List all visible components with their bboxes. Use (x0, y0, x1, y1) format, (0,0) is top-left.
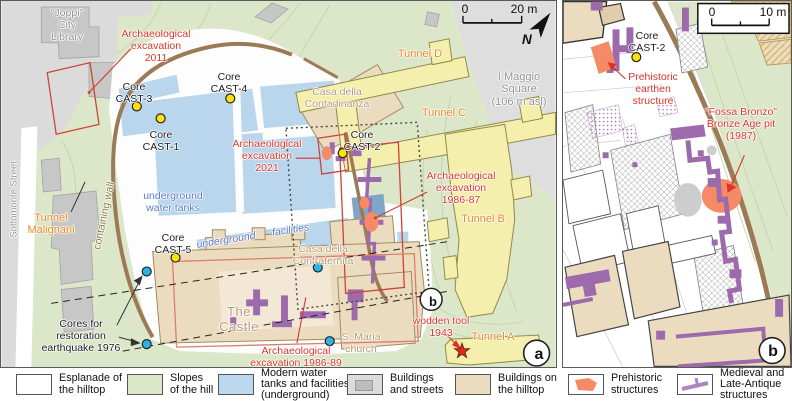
legend-label: Buildings on the hilltop (498, 373, 557, 396)
core-dot-cast3 (132, 102, 141, 111)
core-dot-cast1 (156, 114, 165, 123)
legend-item-water: Modern water tanks and facilities (under… (218, 368, 349, 401)
prehistoric-blob-icon (569, 375, 603, 394)
legend-label: Modern water tanks and facilities (under… (261, 368, 349, 401)
legend-label: Prehistoric structures (611, 373, 662, 396)
core-dot-cast2 (338, 149, 347, 158)
legend-label: Buildings and streets (390, 373, 443, 396)
core-dot-cast5 (171, 253, 180, 262)
legend-item-prehistoric: Prehistoric structures (568, 368, 662, 401)
panel-b: Core CAST-2 Prehistoric earthen structur… (562, 0, 792, 368)
gray-blob (674, 183, 702, 217)
legend-label: Slopes of the hill (170, 373, 213, 396)
panel-b-map (563, 1, 791, 367)
swatch-esplanade (16, 374, 52, 395)
legend-item-buildings-hilltop: Buildings on the hilltop (455, 368, 557, 401)
legend-label: Esplanade of the hilltop (59, 373, 122, 396)
medieval-wall-icon (678, 375, 712, 394)
inset-badge-circle (420, 288, 442, 310)
panel-a: “Joppi” City Library Sottomonte Street A… (0, 0, 557, 368)
core-dot-cast2-b (632, 53, 641, 62)
panel-a-map (1, 1, 556, 367)
swatch-water (218, 374, 254, 395)
figure-archaeological-map: “Joppi” City Library Sottomonte Street A… (0, 0, 792, 401)
core-dot-cast4 (226, 94, 235, 103)
legend-item-buildings-streets: Buildings and streets (347, 368, 443, 401)
swatch-buildings-streets (347, 374, 383, 395)
panel-a-badge-circle (524, 340, 550, 366)
legend-item-medieval: Medieval and Late-Antique structures (677, 368, 784, 401)
swatch-slopes (127, 374, 163, 395)
legend-label: Medieval and Late-Antique structures (720, 368, 784, 401)
legend: Esplanade of the hilltop Slopes of the h… (0, 368, 792, 401)
legend-item-slopes: Slopes of the hill (127, 368, 213, 401)
swatch-buildings-hilltop (455, 374, 491, 395)
panel-b-badge-circle (759, 338, 785, 364)
swatch-prehistoric (568, 374, 604, 395)
swatch-medieval (677, 374, 713, 395)
legend-item-esplanade: Esplanade of the hilltop (16, 368, 122, 401)
scale-bar-b (698, 4, 789, 34)
